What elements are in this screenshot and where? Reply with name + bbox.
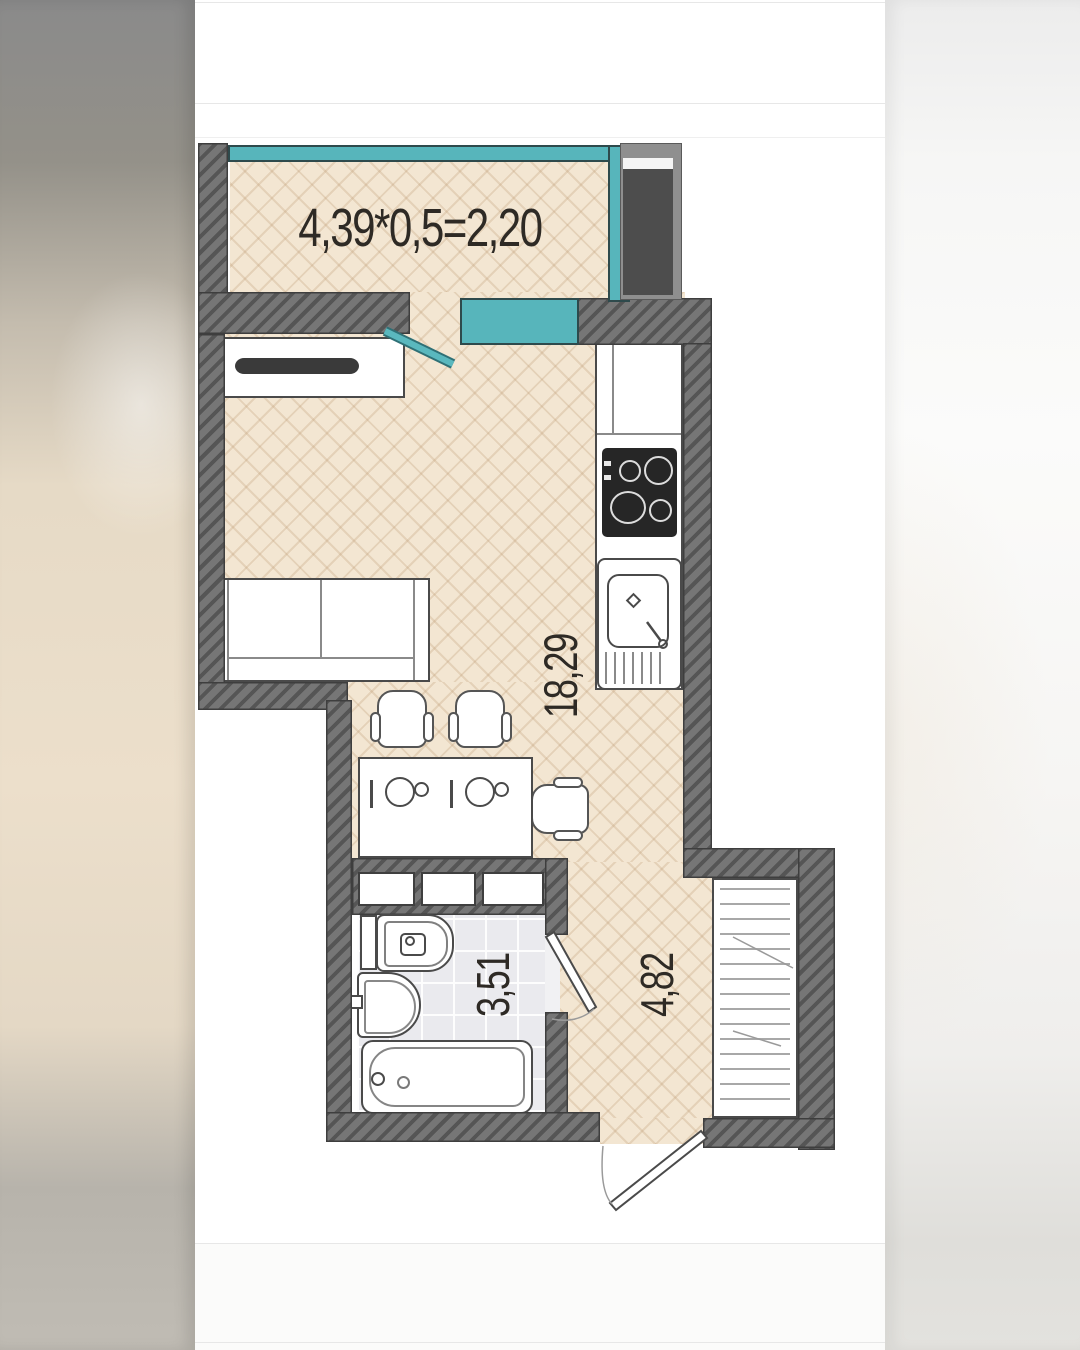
chair-seat [531, 784, 589, 834]
sofa [212, 578, 430, 682]
wardrobe-rail-lines [720, 888, 790, 1108]
wardrobe [712, 878, 798, 1118]
bathtub-faucet [371, 1072, 385, 1086]
page-seam-line [195, 1243, 885, 1244]
chair [531, 777, 593, 841]
place-setting [385, 777, 415, 807]
page-seam-line [195, 103, 885, 104]
hallway-area-label: 4,82 [597, 915, 717, 1055]
chair-armrest [448, 712, 459, 742]
chair-armrest [370, 712, 381, 742]
sofa-armrest-line [227, 580, 229, 680]
chair [370, 690, 434, 752]
toilet-tank [360, 915, 377, 970]
wall [326, 700, 352, 1142]
chair-armrest [553, 777, 583, 788]
wall [577, 298, 712, 345]
page-seam-line [195, 1342, 885, 1343]
screenshot-root: { "page": { "type": "apartment floor pla… [0, 0, 1080, 1350]
shaft-slit [623, 158, 673, 169]
stove-control [604, 461, 611, 466]
bathroom-area-label: 3,51 [433, 915, 553, 1055]
kitchen-window [460, 298, 579, 345]
kitchen-counter-divider [597, 433, 681, 435]
chair-armrest [553, 830, 583, 841]
bathtub-inner [369, 1047, 525, 1107]
chair-seat [455, 690, 505, 748]
wall [798, 848, 835, 1150]
wall [326, 1112, 600, 1142]
washbasin [357, 972, 421, 1038]
stove-burner [610, 491, 646, 524]
sofa-backrest-line [227, 657, 415, 659]
balcony-area-label: 4,39*0,5=2,20 [255, 196, 585, 260]
sofa-armrest-line [413, 580, 415, 680]
chair-armrest [423, 712, 434, 742]
ventilation-shaft [620, 143, 682, 300]
storage-shelf [358, 872, 415, 906]
balcony-window [228, 145, 612, 162]
blurred-background-right [884, 0, 1080, 1350]
chair-seat [377, 690, 427, 748]
washbasin-inner [364, 980, 416, 1034]
tv-stand [212, 337, 405, 398]
page-seam-line [195, 137, 885, 138]
stove [602, 448, 677, 537]
wall [198, 292, 410, 334]
wall [703, 1118, 835, 1148]
wall [198, 143, 228, 295]
stove-burner [619, 460, 641, 482]
page-bottom-strip [195, 1243, 885, 1350]
stove-burner [644, 456, 673, 485]
storage-shelf [421, 872, 476, 906]
stove-control [604, 475, 611, 480]
place-setting-knife [450, 780, 453, 808]
kitchen-counter-divider [612, 345, 614, 433]
toilet-flush [400, 933, 426, 956]
place-setting [465, 777, 495, 807]
entrance-threshold-floor [600, 1118, 703, 1144]
wall [198, 334, 225, 686]
blurred-background-left [0, 0, 196, 1350]
shaft-dark-fill [623, 169, 673, 295]
wall [683, 343, 712, 878]
floor-plan-panel: 4,39*0,5=2,20 18,29 3,51 4,82 [195, 0, 885, 1350]
sofa-seat-divider [320, 580, 322, 657]
place-setting-knife [370, 780, 373, 808]
entrance-door-swing-arc [602, 1146, 612, 1204]
storage-shelves-wall [352, 858, 568, 915]
living-room-area-label: 18,29 [500, 606, 620, 746]
bathtub-drain [397, 1076, 410, 1089]
storage-shelf [482, 872, 544, 906]
page-seam-line [195, 2, 885, 3]
tv [235, 358, 359, 374]
stove-burner [649, 499, 672, 522]
dining-table [358, 757, 533, 858]
